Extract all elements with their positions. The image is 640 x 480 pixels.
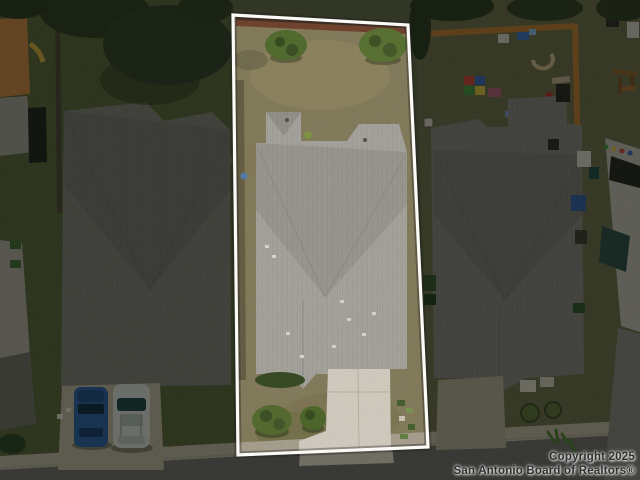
watermark-line1: Copyright 2025 [454, 450, 635, 464]
aerial-photo-canvas [0, 0, 640, 480]
aerial-photo [0, 0, 640, 480]
watermark: Copyright 2025 San Antonio Board of Real… [454, 450, 635, 478]
watermark-line2: San Antonio Board of Realtors® [454, 464, 635, 478]
screenshot-stage: Copyright 2025 San Antonio Board of Real… [0, 0, 640, 480]
